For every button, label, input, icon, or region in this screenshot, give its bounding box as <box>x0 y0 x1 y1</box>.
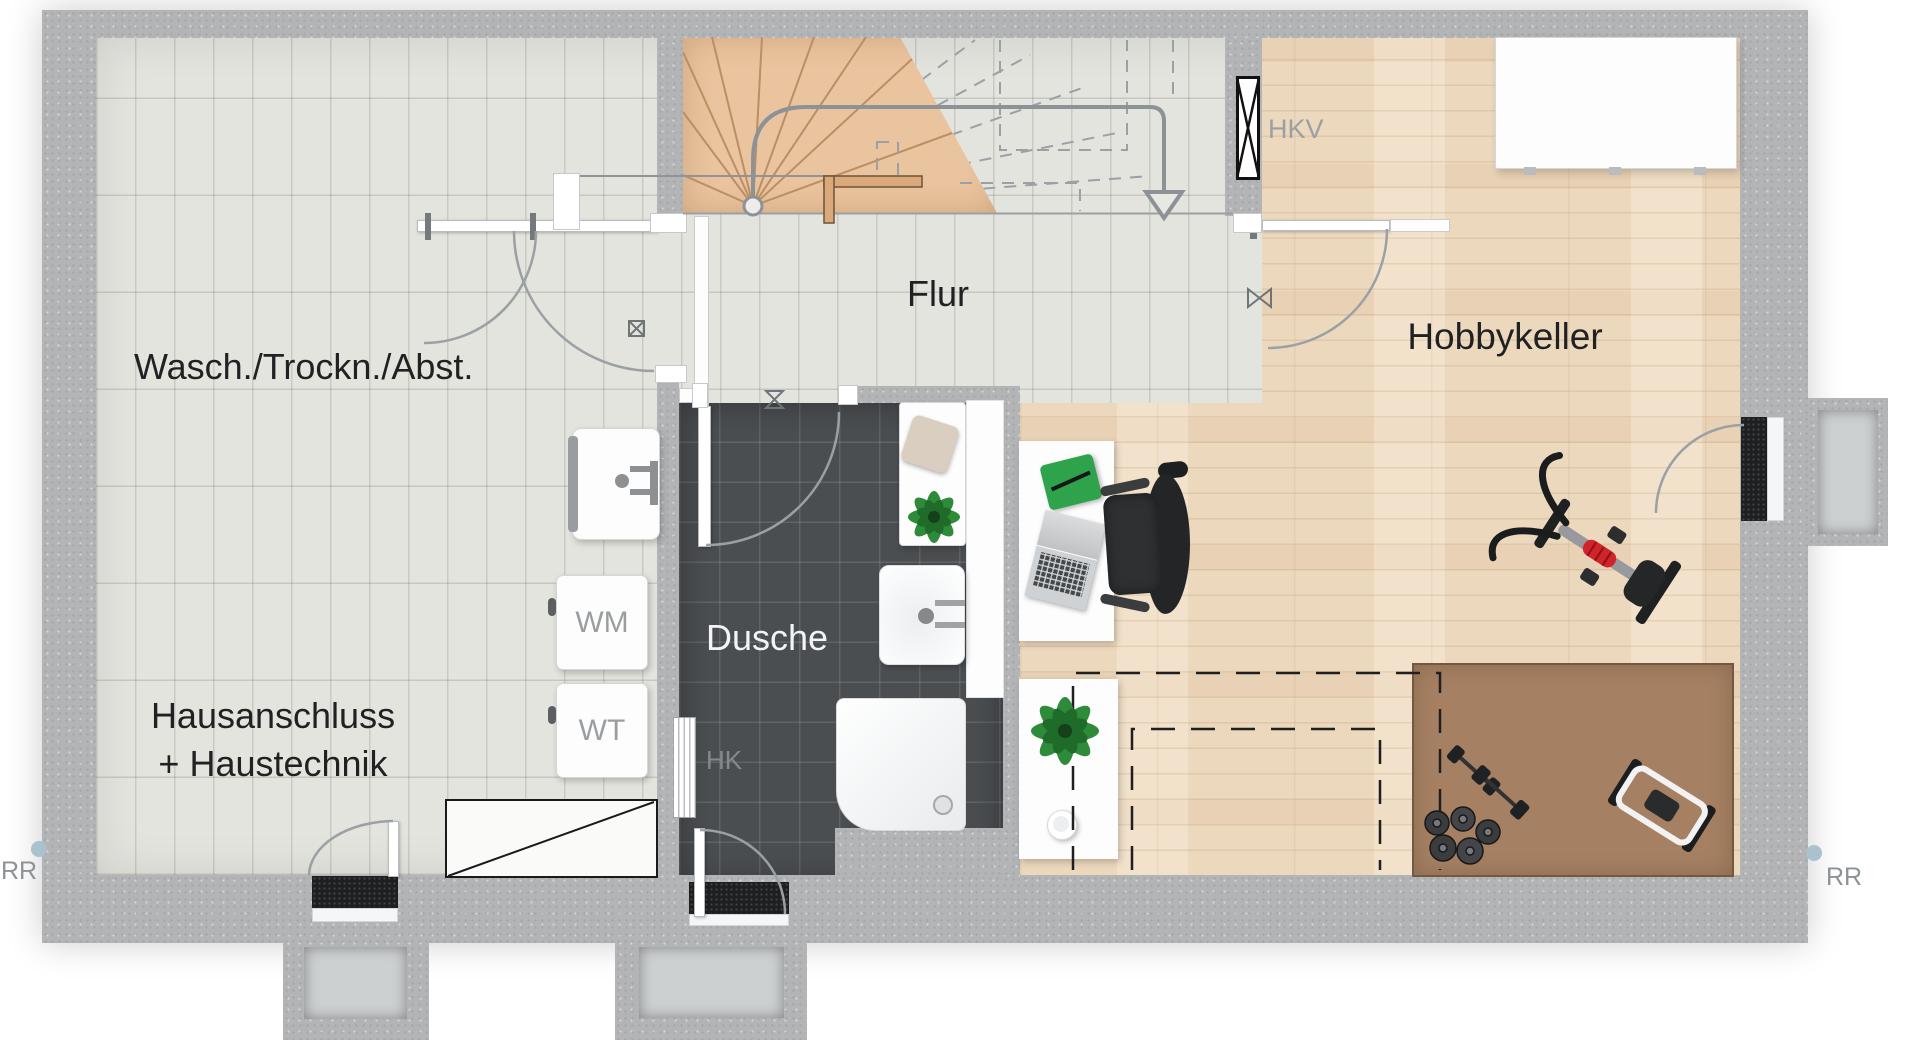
office-chair <box>1100 462 1196 628</box>
radiator <box>673 717 696 818</box>
room-label-dusche: Dusche <box>706 617 828 659</box>
door-leaf-wasch-flur <box>417 220 657 232</box>
floor-plan-canvas: WM WT RR RR <box>0 0 1920 1061</box>
shower-drain-icon <box>933 795 953 815</box>
partition-hobby-door <box>1390 219 1450 232</box>
wt-hose <box>548 706 556 724</box>
gym-mat <box>1412 663 1734 877</box>
cabinet-foot-icon <box>1694 167 1706 175</box>
laundry-sink-bracket <box>568 436 578 532</box>
washing-machine: WM <box>556 575 648 670</box>
wall-stair-west <box>657 38 683 216</box>
wall-dusche-east <box>1003 386 1020 883</box>
faucet-body <box>650 461 658 505</box>
washing-machine-label: WM <box>575 606 628 640</box>
door-hinge-wasch-left <box>425 213 431 240</box>
hausanschluss-line1: Hausanschluss <box>113 692 433 740</box>
door-jamb-wasch <box>650 213 687 233</box>
lightwell-bottom-middle-floor <box>639 947 784 1018</box>
shower-ledge <box>966 400 1004 698</box>
washbasin-drain <box>918 608 934 624</box>
wall-dusche-southeast-block <box>835 828 1020 875</box>
room-label-hausanschluss: Hausanschluss + Haustechnik <box>113 692 433 787</box>
door-leaf-dusche-exterior <box>694 828 705 917</box>
rr-label-right: RR <box>1826 863 1862 892</box>
rr-label-left: RR <box>1 857 37 886</box>
door-leaf-flur-hobby <box>1262 220 1390 231</box>
washbasin-faucet-1 <box>935 600 965 606</box>
rr-marker-dot-left <box>31 841 47 857</box>
dryer-label: WT <box>579 714 626 748</box>
room-label-wasch: Wasch./Trockn./Abst. <box>134 343 454 391</box>
door-jamb-flur-hobby <box>1233 213 1262 233</box>
door-leaf-wasch-exterior <box>388 821 399 877</box>
wall-top <box>42 10 1808 38</box>
wall-bottom <box>42 875 1808 943</box>
technical-unit-symbol <box>445 799 658 878</box>
shower-tray <box>836 698 966 831</box>
doormat-bottom-left <box>312 876 398 909</box>
lightwell-bottom-left-floor <box>304 947 407 1019</box>
stairwell-jamb-west <box>553 173 580 230</box>
room-label-flur: Flur <box>878 270 998 318</box>
door-jamb-dusche-right <box>838 385 858 405</box>
door-jamb-dusche-left <box>692 383 708 408</box>
threshold-bottom-left <box>312 908 398 922</box>
cup <box>1047 810 1077 840</box>
door-hinge-wasch-right <box>530 213 536 240</box>
cabinet-foot-icon <box>1524 167 1536 175</box>
hkv-symbol <box>1236 76 1260 180</box>
door-jamb-dusche-wall <box>655 365 687 383</box>
chair-armrest-bottom <box>1100 593 1151 613</box>
hausanschluss-line2: + Haustechnik <box>113 740 433 788</box>
washbasin-faucet-2 <box>935 622 965 628</box>
cabinet-foot-icon <box>1609 167 1621 175</box>
pen-icon <box>1051 471 1091 491</box>
doormat-right <box>1741 417 1768 521</box>
chair-seat <box>1103 492 1164 596</box>
threshold-right <box>1767 417 1784 521</box>
wall-left <box>42 10 96 943</box>
lightwell-right-floor <box>1818 410 1878 534</box>
cabinet <box>1495 37 1737 169</box>
room-label-hobbykeller: Hobbykeller <box>1390 313 1620 362</box>
faucet-knob <box>615 474 629 488</box>
annotation-hk: HK <box>706 745 742 776</box>
wm-hose <box>548 598 556 616</box>
annotation-hkv: HKV <box>1268 114 1324 145</box>
laptop-keys <box>1033 552 1090 597</box>
door-leaf-dusche <box>698 406 711 547</box>
dryer: WT <box>556 683 648 778</box>
partition-flur-west <box>694 216 709 408</box>
rr-marker-dot-right <box>1806 845 1822 861</box>
